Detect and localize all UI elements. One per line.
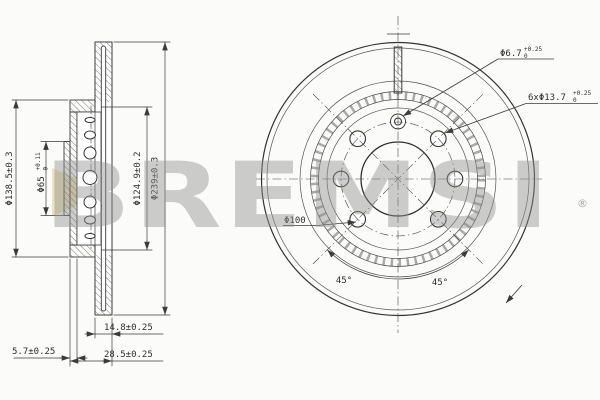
brake-disc-technical-drawing: Φ138.5±0.3 Φ65 +0.11 0 Φ124.9±0.2 Φ239±0… (0, 0, 600, 400)
section-cut-indicator (394, 47, 402, 93)
angle-left-label: 45° (336, 276, 352, 286)
vent-slot (101, 46, 105, 311)
section-view: Φ138.5±0.3 Φ65 +0.11 0 Φ124.9±0.2 Φ239±0… (5, 42, 170, 366)
svg-text:Φ65: Φ65 (37, 176, 47, 192)
pilot-lip-section (64, 142, 70, 216)
dim-total-width-label: 28.5±0.25 (104, 350, 153, 360)
dim-pin-hole-tol-dn: 0 (524, 53, 528, 60)
angle-right-label: 45° (432, 278, 448, 288)
dim-hat-thickness-label: 5.7±0.25 (12, 347, 55, 357)
hat-hole-projections (83, 118, 97, 239)
front-view: 45° 45° Φ6.7 +0.25 0 6xΦ13.7 +0.25 0 Φ10… (256, 16, 598, 333)
dim-bolt-holes-tol-up: +0.25 (573, 90, 591, 97)
drawing-canvas: Φ138.5±0.3 Φ65 +0.11 0 Φ124.9±0.2 Φ239±0… (0, 0, 600, 400)
bolt-holes-leader (445, 104, 598, 134)
dim-outer-label: Φ239±0.3 (151, 157, 161, 200)
dim-pin-hole-tol-up: +0.25 (524, 46, 542, 53)
dim-pin-hole-label: Φ6.7 (500, 49, 522, 59)
dim-band-width-label: 14.8±0.25 (104, 323, 153, 333)
view-direction-arrow (506, 285, 522, 303)
dim-bolt-holes-tol-dn: 0 (573, 97, 577, 104)
hat-face-section (70, 112, 77, 245)
pin-hole-leader (403, 59, 554, 116)
svg-text:+0.11: +0.11 (35, 152, 42, 170)
dim-pcd-label: Φ100 (284, 216, 306, 226)
dim-hat-cyl-label: Φ124.9±0.2 (133, 151, 143, 205)
dim-hat-od-label: Φ138.5±0.3 (5, 151, 15, 205)
svg-text:0: 0 (43, 167, 50, 171)
dim-bolt-holes-label: 6xΦ13.7 (528, 93, 566, 103)
dim-bore-label: Φ65 +0.11 0 (35, 152, 50, 193)
